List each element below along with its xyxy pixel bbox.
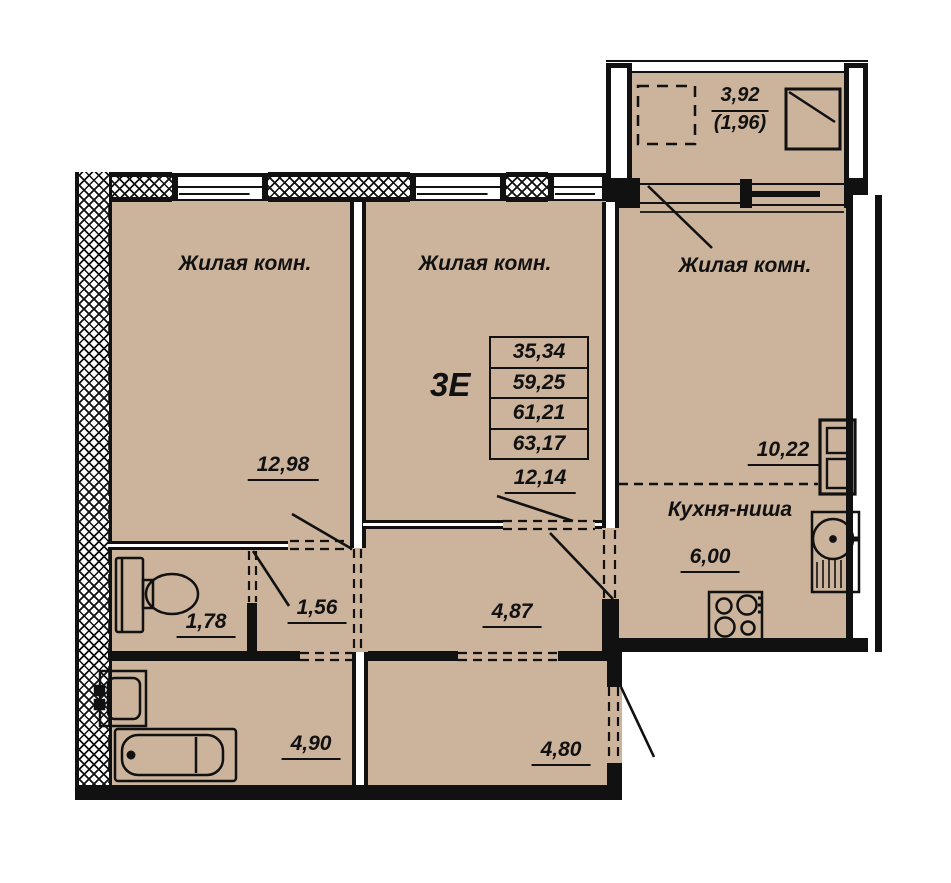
wc-area: 1,78	[177, 610, 236, 638]
wall-kitchen-corridor-stub	[602, 599, 619, 650]
window-room2	[410, 173, 506, 201]
room1-area: 12,98	[248, 453, 319, 481]
wall-corridor-bottom-1	[108, 651, 300, 661]
wall-bottom-exterior	[75, 785, 622, 800]
room2-area: 12,14	[505, 466, 576, 494]
floor-plan: Жилая комн. Жилая комн. Жилая комн. Кухн…	[0, 0, 951, 883]
balcony-area-block: 3,92 (1,96)	[712, 84, 769, 135]
wall-room2-bottom-stub	[595, 520, 602, 529]
room3-area: 10,22	[748, 438, 819, 466]
areas-table-row: 63,17	[491, 428, 587, 459]
bathroom-area: 4,90	[282, 732, 341, 760]
wall-room1-bottom	[108, 541, 288, 550]
wall-entrance-upper	[607, 650, 622, 687]
hall-small-area: 1,56	[288, 596, 347, 624]
wall-bath-hallway	[352, 652, 368, 785]
areas-table-row: 35,34	[491, 338, 587, 367]
areas-table-row: 61,21	[491, 397, 587, 428]
wall-right-exterior	[846, 195, 882, 652]
corridor-area: 4,87	[483, 600, 542, 628]
wall-corridor-bottom-2	[368, 651, 458, 661]
balcony-wall-chunk-mid	[740, 179, 752, 208]
kitchen-label: Кухня-ниша	[668, 498, 792, 521]
wall-left-exterior	[75, 172, 112, 800]
room2-label: Жилая комн.	[419, 252, 552, 275]
balcony-right-pier	[844, 63, 868, 195]
wall-top-hatch-2	[268, 172, 410, 202]
apartment-type-label: 3Е	[430, 366, 470, 404]
balcony-left-pier	[606, 63, 632, 195]
window-room1	[172, 173, 268, 201]
areas-table-row: 59,25	[491, 367, 587, 398]
areas-table: 35,34 59,25 61,21 63,17	[489, 336, 589, 460]
wall-kitchen-bottom	[602, 638, 868, 652]
kitchen-area: 6,00	[681, 545, 740, 573]
wall-room2-room3	[602, 202, 619, 528]
window-room2b	[548, 173, 608, 201]
wall-wc-right	[247, 603, 257, 653]
apartment-floor-lower	[80, 640, 622, 790]
balcony-area: 3,92	[712, 84, 769, 112]
room1-label: Жилая комн.	[179, 252, 312, 275]
hallway-area: 4,80	[532, 738, 591, 766]
apartment-floor-upper	[80, 175, 866, 652]
wall-room2-bottom	[363, 520, 503, 529]
balcony-area-reduced: (1,96)	[712, 112, 769, 135]
wall-corridor-bottom-3	[558, 651, 607, 661]
room3-label: Жилая комн.	[679, 254, 812, 277]
wall-top-hatch-3	[506, 172, 548, 202]
wall-entrance-lower	[607, 763, 622, 800]
wall-room1-room2	[350, 202, 366, 548]
balcony-glazing	[606, 60, 868, 73]
